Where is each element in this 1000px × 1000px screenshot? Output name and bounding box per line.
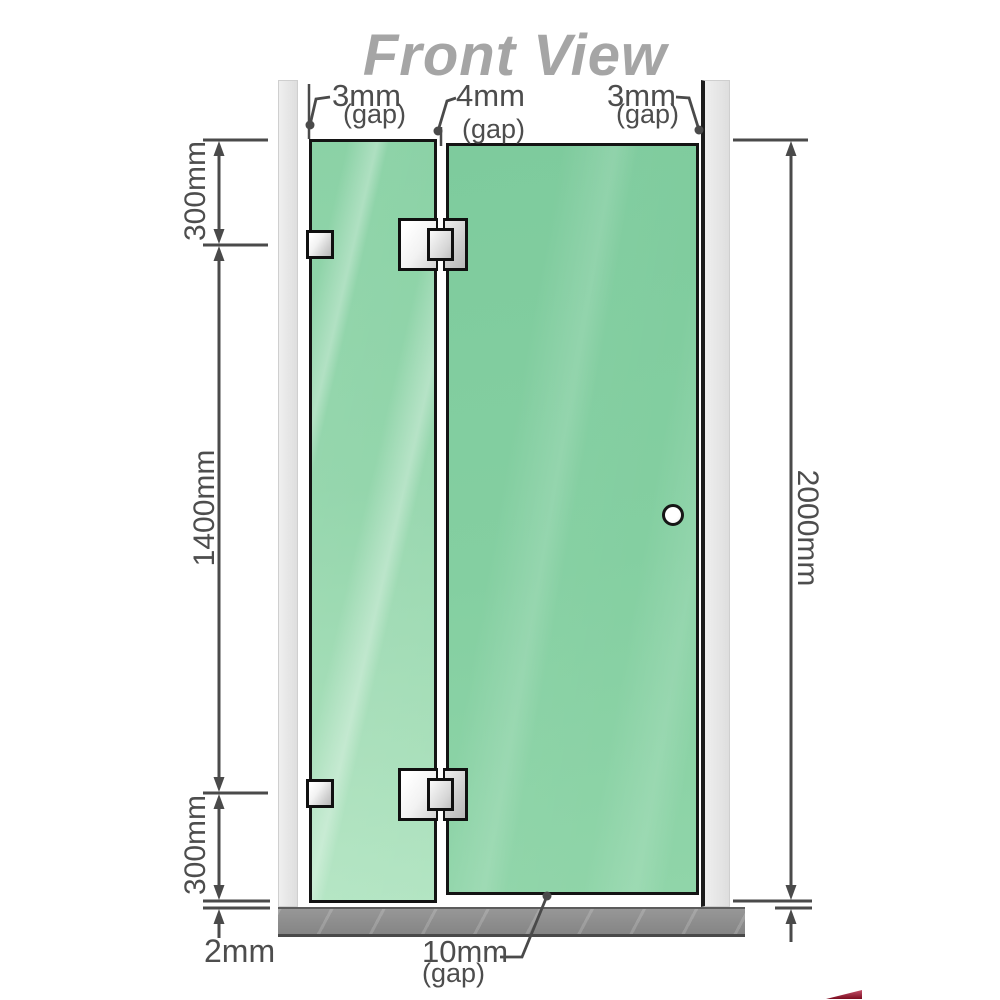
gap-top-middle-unit: (gap) xyxy=(462,116,525,143)
gap-top-right-unit: (gap) xyxy=(616,101,679,128)
floor-bar xyxy=(278,907,745,937)
dim-upper-300mm: 300mm xyxy=(179,141,213,241)
gap-bottom-unit: (gap) xyxy=(422,960,485,987)
corner-logo-fragment xyxy=(826,990,862,999)
wall-bracket-bottom-icon xyxy=(306,779,334,808)
wall-left-strip xyxy=(278,80,298,907)
diagram-canvas: Front View xyxy=(0,0,1000,1000)
hinge-pivot-block xyxy=(427,228,454,261)
hinge-top-icon xyxy=(398,218,468,271)
wall-bracket-top-icon xyxy=(306,230,334,259)
wall-right-strip xyxy=(701,80,730,907)
gap-top-left-unit: (gap) xyxy=(343,101,406,128)
dim-lower-300mm: 300mm xyxy=(179,795,213,895)
hinge-bottom-icon xyxy=(398,768,468,821)
hinge-pivot-block xyxy=(427,778,454,811)
dim-total-2000mm: 2000mm xyxy=(790,470,824,587)
dim-middle-1400mm: 1400mm xyxy=(188,450,222,567)
gap-top-middle-value: 4mm xyxy=(456,80,525,111)
door-handle-knob xyxy=(662,504,684,526)
dim-floor-gap-2mm: 2mm xyxy=(204,933,275,970)
door-glass-panel xyxy=(446,143,699,895)
